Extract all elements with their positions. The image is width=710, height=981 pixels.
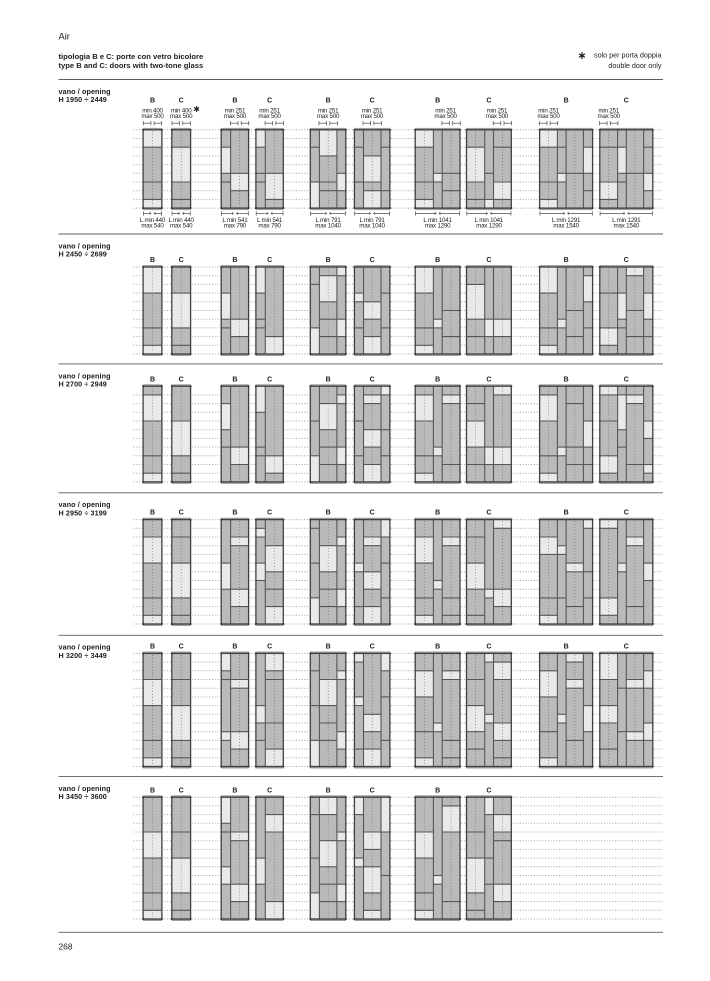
svg-text:C: C xyxy=(624,644,629,651)
svg-text:C: C xyxy=(267,787,272,794)
svg-text:double door only: double door only xyxy=(608,61,662,70)
svg-text:B: B xyxy=(232,510,237,517)
svg-text:B: B xyxy=(564,510,569,517)
svg-text:C: C xyxy=(370,376,375,383)
svg-text:B: B xyxy=(564,257,569,264)
svg-text:C: C xyxy=(486,787,491,794)
svg-text:C: C xyxy=(370,510,375,517)
svg-text:B: B xyxy=(232,376,237,383)
svg-text:B: B xyxy=(435,510,440,517)
svg-text:C: C xyxy=(624,510,629,517)
svg-text:C: C xyxy=(486,257,491,264)
svg-text:C: C xyxy=(624,97,629,104)
svg-text:C: C xyxy=(179,510,184,517)
svg-text:max 1540: max 1540 xyxy=(614,223,640,230)
svg-text:C: C xyxy=(486,510,491,517)
svg-text:B: B xyxy=(150,644,155,651)
svg-text:B: B xyxy=(326,644,331,651)
svg-text:C: C xyxy=(486,97,491,104)
svg-text:C: C xyxy=(267,257,272,264)
svg-text:Air: Air xyxy=(59,31,70,41)
svg-text:C: C xyxy=(624,257,629,264)
svg-text:max 500: max 500 xyxy=(537,113,560,120)
svg-text:H 2950 ÷ 3199: H 2950 ÷ 3199 xyxy=(59,508,107,517)
svg-text:H 2700 ÷ 2949: H 2700 ÷ 2949 xyxy=(59,379,107,388)
svg-text:B: B xyxy=(232,97,237,104)
svg-text:type B and C: doors with two-t: type B and C: doors with two-tone glass xyxy=(59,61,204,70)
svg-text:268: 268 xyxy=(59,942,73,952)
svg-text:C: C xyxy=(267,510,272,517)
svg-text:B: B xyxy=(435,376,440,383)
svg-text:H 3200 ÷ 3449: H 3200 ÷ 3449 xyxy=(59,651,107,660)
svg-text:max 500: max 500 xyxy=(141,113,164,120)
svg-text:B: B xyxy=(326,257,331,264)
svg-text:B: B xyxy=(326,376,331,383)
svg-text:max 540: max 540 xyxy=(141,223,164,230)
svg-text:solo per porta doppia: solo per porta doppia xyxy=(594,50,662,59)
svg-text:max 500: max 500 xyxy=(224,113,247,120)
svg-text:C: C xyxy=(179,97,184,104)
svg-text:B: B xyxy=(564,97,569,104)
svg-text:H 2450 ÷ 2699: H 2450 ÷ 2699 xyxy=(59,250,107,259)
svg-text:C: C xyxy=(267,376,272,383)
svg-text:B: B xyxy=(150,510,155,517)
svg-text:B: B xyxy=(150,257,155,264)
svg-text:tipologia B e C: porte con vet: tipologia B e C: porte con vetro bicolor… xyxy=(59,52,204,61)
svg-text:B: B xyxy=(564,376,569,383)
svg-text:C: C xyxy=(179,257,184,264)
svg-text:C: C xyxy=(267,644,272,651)
svg-text:B: B xyxy=(326,97,331,104)
svg-text:B: B xyxy=(232,644,237,651)
svg-text:C: C xyxy=(486,376,491,383)
svg-text:B: B xyxy=(435,257,440,264)
svg-text:max 790: max 790 xyxy=(224,223,247,230)
svg-text:max 1540: max 1540 xyxy=(553,223,579,230)
svg-text:B: B xyxy=(232,257,237,264)
svg-text:max 500: max 500 xyxy=(486,113,509,120)
svg-text:B: B xyxy=(435,644,440,651)
svg-text:C: C xyxy=(179,787,184,794)
svg-text:B: B xyxy=(232,787,237,794)
svg-text:max 1040: max 1040 xyxy=(315,223,341,230)
svg-text:C: C xyxy=(267,97,272,104)
svg-text:C: C xyxy=(370,97,375,104)
svg-text:C: C xyxy=(624,376,629,383)
svg-text:B: B xyxy=(150,787,155,794)
svg-text:max 500: max 500 xyxy=(258,113,281,120)
svg-text:B: B xyxy=(326,510,331,517)
svg-text:max 1290: max 1290 xyxy=(476,223,502,230)
svg-text:max 500: max 500 xyxy=(361,113,384,120)
svg-text:C: C xyxy=(370,644,375,651)
svg-text:C: C xyxy=(486,644,491,651)
svg-text:B: B xyxy=(435,97,440,104)
svg-text:C: C xyxy=(179,644,184,651)
svg-text:C: C xyxy=(370,787,375,794)
svg-text:H 3450 ÷ 3600: H 3450 ÷ 3600 xyxy=(59,792,107,801)
svg-text:C: C xyxy=(179,376,184,383)
svg-text:max 540: max 540 xyxy=(170,223,193,230)
svg-text:B: B xyxy=(564,644,569,651)
svg-text:max 500: max 500 xyxy=(317,113,340,120)
svg-text:max 1290: max 1290 xyxy=(425,223,451,230)
svg-text:max 500: max 500 xyxy=(170,113,193,120)
svg-text:C: C xyxy=(370,257,375,264)
svg-text:max 790: max 790 xyxy=(258,223,281,230)
svg-text:B: B xyxy=(150,97,155,104)
svg-text:max 500: max 500 xyxy=(434,113,457,120)
svg-text:max 1040: max 1040 xyxy=(359,223,385,230)
svg-text:max 500: max 500 xyxy=(598,113,621,120)
svg-text:H 1950 ÷ 2449: H 1950 ÷ 2449 xyxy=(59,95,107,104)
svg-text:B: B xyxy=(150,376,155,383)
svg-text:B: B xyxy=(435,787,440,794)
svg-text:B: B xyxy=(326,787,331,794)
